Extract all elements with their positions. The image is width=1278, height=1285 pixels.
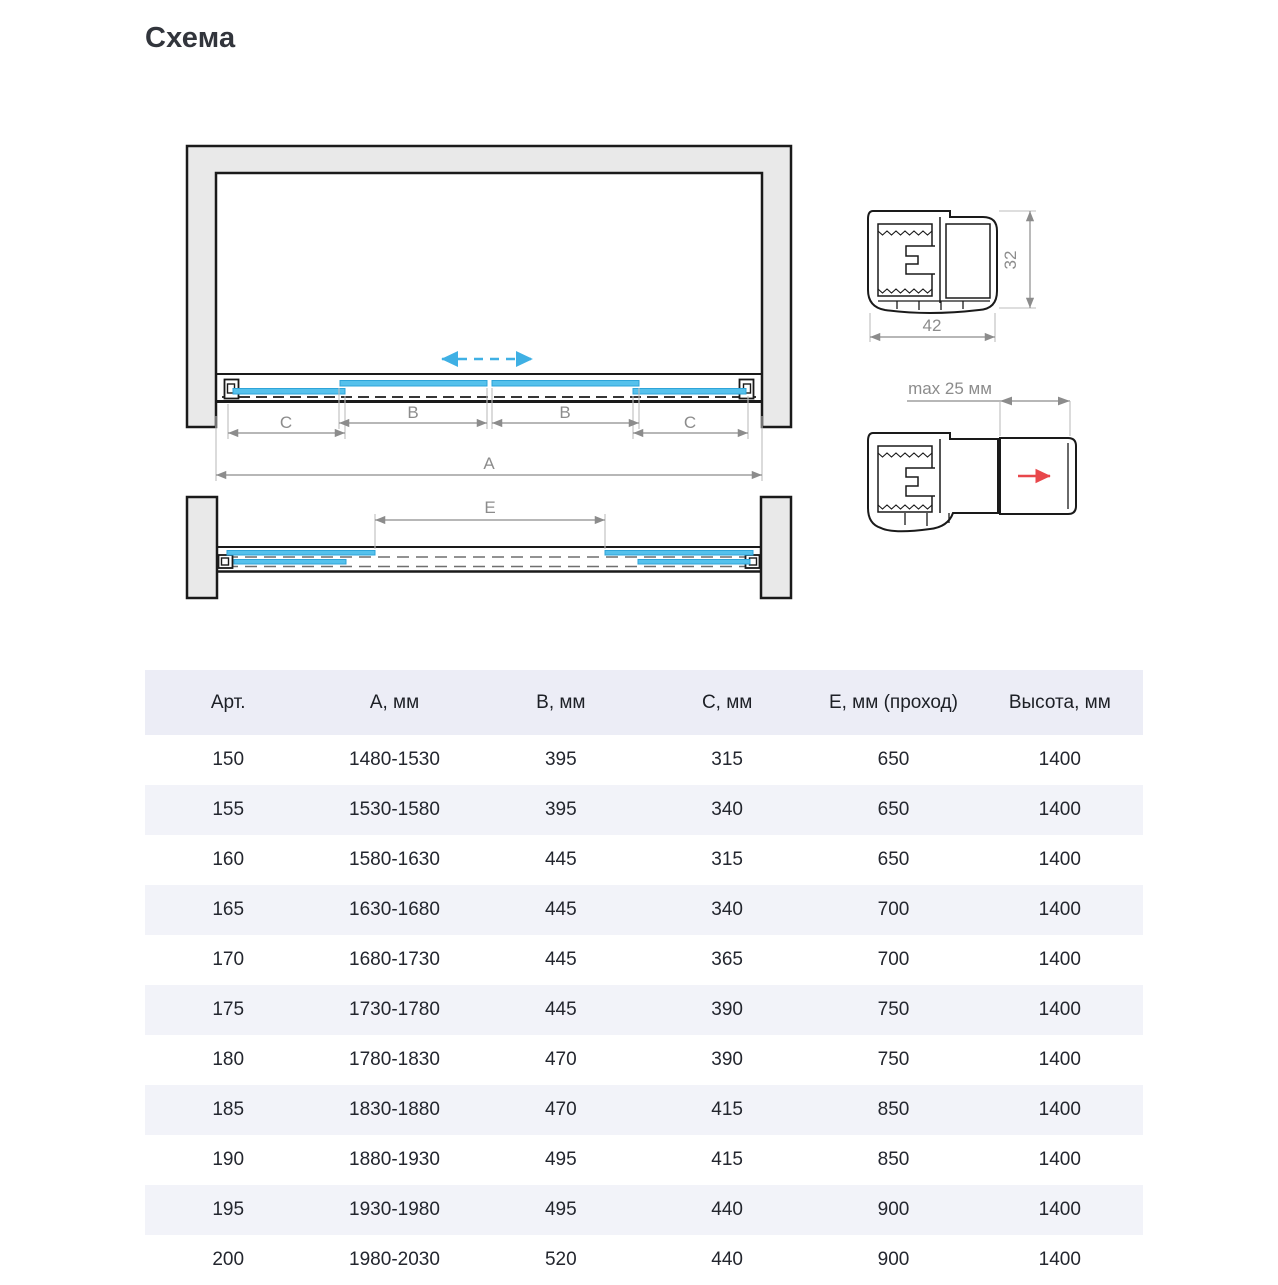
table-cell: 750 bbox=[810, 999, 976, 1021]
table-cell: 395 bbox=[478, 799, 644, 821]
table-cell: 700 bbox=[810, 949, 976, 971]
fixed-panel-left bbox=[233, 389, 345, 395]
dim-label-max25: max 25 мм bbox=[908, 379, 992, 398]
wall-pillar-left bbox=[187, 497, 217, 598]
wall-pillar-right bbox=[761, 497, 791, 598]
table-row: 1751730-17804453907501400 bbox=[145, 985, 1143, 1035]
table-row: 1701680-17304453657001400 bbox=[145, 935, 1143, 985]
table-cell: 650 bbox=[810, 849, 976, 871]
table-cell: 1530-1580 bbox=[311, 799, 477, 821]
table-cell: 850 bbox=[810, 1149, 976, 1171]
table-cell: 1730-1780 bbox=[311, 999, 477, 1021]
profile-dim-32: 32 bbox=[999, 211, 1036, 308]
table-cell: 1400 bbox=[977, 1049, 1143, 1071]
table-row: 1501480-15303953156501400 bbox=[145, 735, 1143, 785]
dim-label-a: A bbox=[483, 454, 495, 473]
top-view-closed: B B C C A bbox=[187, 146, 791, 481]
wall-bracket-left-open bbox=[219, 555, 233, 568]
table-cell: 1480-1530 bbox=[311, 749, 477, 771]
table-cell: 180 bbox=[145, 1049, 311, 1071]
door-track bbox=[216, 374, 762, 402]
table-cell: 1980-2030 bbox=[311, 1249, 477, 1271]
table-row: 1851830-18804704158501400 bbox=[145, 1085, 1143, 1135]
table-cell: 175 bbox=[145, 999, 311, 1021]
table-cell: 520 bbox=[478, 1249, 644, 1271]
dim-label-b-left: B bbox=[407, 403, 418, 422]
table-header-cell: Высота, мм bbox=[977, 692, 1143, 714]
dim-label-c-left: C bbox=[280, 413, 292, 432]
table-cell: 1680-1730 bbox=[311, 949, 477, 971]
table-cell: 1930-1980 bbox=[311, 1199, 477, 1221]
table-cell: 1400 bbox=[977, 999, 1143, 1021]
fixed-panel-right bbox=[633, 389, 746, 395]
table-cell: 850 bbox=[810, 1099, 976, 1121]
profile-dim-max25: max 25 мм bbox=[907, 379, 1070, 436]
table-cell: 190 bbox=[145, 1149, 311, 1171]
dim-label-b-right: B bbox=[559, 403, 570, 422]
table-cell: 1400 bbox=[977, 1199, 1143, 1221]
table-cell: 1400 bbox=[977, 1249, 1143, 1271]
dim-label-e: E bbox=[484, 498, 495, 517]
table-cell: 1830-1880 bbox=[311, 1099, 477, 1121]
sliding-panel-right bbox=[492, 381, 639, 387]
spec-table: Арт.А, ммВ, ммС, ммЕ, мм (проход)Высота,… bbox=[145, 670, 1143, 1285]
table-row: 1601580-16304453156501400 bbox=[145, 835, 1143, 885]
table-cell: 445 bbox=[478, 899, 644, 921]
table-cell: 340 bbox=[644, 799, 810, 821]
table-cell: 440 bbox=[644, 1249, 810, 1271]
open-panel-lower-left bbox=[234, 560, 346, 565]
table-cell: 195 bbox=[145, 1199, 311, 1221]
technical-diagram: B B C C A bbox=[0, 0, 1278, 665]
table-cell: 200 bbox=[145, 1249, 311, 1271]
table-cell: 750 bbox=[810, 1049, 976, 1071]
table-cell: 1400 bbox=[977, 799, 1143, 821]
open-panel-lower-right bbox=[638, 560, 750, 565]
dim-label-c-right: C bbox=[684, 413, 696, 432]
profile-body-outline bbox=[868, 433, 998, 531]
sliding-panel-left bbox=[340, 381, 487, 387]
table-cell: 1780-1830 bbox=[311, 1049, 477, 1071]
table-cell: 445 bbox=[478, 999, 644, 1021]
wall-outline bbox=[187, 146, 791, 427]
profile-section-top: 32 42 bbox=[868, 211, 1036, 342]
table-cell: 495 bbox=[478, 1149, 644, 1171]
table-row: 1901880-19304954158501400 bbox=[145, 1135, 1143, 1185]
table-cell: 1580-1630 bbox=[311, 849, 477, 871]
table-row: 1951930-19804954409001400 bbox=[145, 1185, 1143, 1235]
table-cell: 650 bbox=[810, 749, 976, 771]
table-cell: 445 bbox=[478, 949, 644, 971]
extension-lines-e bbox=[375, 514, 605, 549]
table-cell: 315 bbox=[644, 849, 810, 871]
table-cell: 155 bbox=[145, 799, 311, 821]
table-cell: 900 bbox=[810, 1249, 976, 1271]
dim-label-42: 42 bbox=[923, 316, 942, 335]
table-row: 1651630-16804453407001400 bbox=[145, 885, 1143, 935]
table-cell: 495 bbox=[478, 1199, 644, 1221]
table-cell: 160 bbox=[145, 849, 311, 871]
table-cell: 1630-1680 bbox=[311, 899, 477, 921]
table-cell: 445 bbox=[478, 849, 644, 871]
table-row: 1801780-18304703907501400 bbox=[145, 1035, 1143, 1085]
table-header-cell: А, мм bbox=[311, 692, 477, 714]
table-cell: 1400 bbox=[977, 899, 1143, 921]
table-cell: 440 bbox=[644, 1199, 810, 1221]
table-cell: 170 bbox=[145, 949, 311, 971]
table-cell: 470 bbox=[478, 1099, 644, 1121]
table-header-row: Арт.А, ммВ, ммС, ммЕ, мм (проход)Высота,… bbox=[145, 670, 1143, 735]
table-cell: 365 bbox=[644, 949, 810, 971]
profile-section-bottom: max 25 мм bbox=[868, 379, 1076, 531]
table-cell: 650 bbox=[810, 799, 976, 821]
table-cell: 390 bbox=[644, 999, 810, 1021]
table-cell: 1400 bbox=[977, 1149, 1143, 1171]
table-cell: 1400 bbox=[977, 849, 1143, 871]
table-cell: 1400 bbox=[977, 949, 1143, 971]
open-panel-upper-right bbox=[605, 551, 753, 556]
table-header-cell: С, мм bbox=[644, 692, 810, 714]
table-cell: 415 bbox=[644, 1149, 810, 1171]
table-row: 1551530-15803953406501400 bbox=[145, 785, 1143, 835]
table-cell: 185 bbox=[145, 1099, 311, 1121]
table-cell: 470 bbox=[478, 1049, 644, 1071]
table-header-cell: Е, мм (проход) bbox=[810, 692, 976, 714]
table-cell: 1400 bbox=[977, 749, 1143, 771]
open-panel-upper-left bbox=[227, 551, 375, 556]
table-cell: 165 bbox=[145, 899, 311, 921]
table-row: 2001980-20305204409001400 bbox=[145, 1235, 1143, 1285]
table-header-cell: Арт. bbox=[145, 692, 311, 714]
table-cell: 700 bbox=[810, 899, 976, 921]
profile-dim-42: 42 bbox=[870, 313, 995, 342]
page: Схема bbox=[0, 0, 1278, 1279]
table-cell: 315 bbox=[644, 749, 810, 771]
table-header-cell: В, мм bbox=[478, 692, 644, 714]
table-cell: 340 bbox=[644, 899, 810, 921]
table-cell: 1880-1930 bbox=[311, 1149, 477, 1171]
table-cell: 415 bbox=[644, 1099, 810, 1121]
table-cell: 900 bbox=[810, 1199, 976, 1221]
table-cell: 150 bbox=[145, 749, 311, 771]
table-cell: 390 bbox=[644, 1049, 810, 1071]
top-view-open: E bbox=[187, 497, 791, 598]
table-cell: 395 bbox=[478, 749, 644, 771]
dim-label-32: 32 bbox=[1001, 251, 1020, 270]
table-cell: 1400 bbox=[977, 1099, 1143, 1121]
